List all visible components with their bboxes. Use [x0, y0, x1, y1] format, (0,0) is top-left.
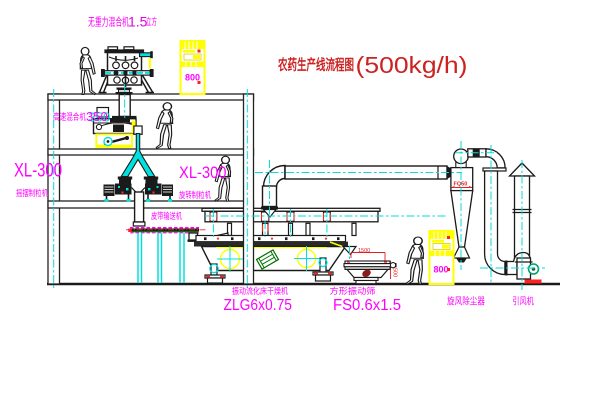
svg-text:方形振动筛: 方形振动筛: [330, 286, 377, 296]
svg-text:农药生产线流程图: 农药生产线流程图: [277, 56, 354, 74]
svg-text:500: 500: [392, 268, 398, 277]
svg-text:振动流化床干燥机: 振动流化床干燥机: [232, 286, 288, 296]
svg-text:XL-300: XL-300: [179, 163, 227, 182]
svg-text:摇摆制粒机: 摇摆制粒机: [16, 188, 48, 198]
svg-text:立方: 立方: [146, 16, 157, 28]
svg-text:1.5: 1.5: [128, 14, 148, 30]
svg-text:FS0.6x1.5: FS0.6x1.5: [333, 297, 401, 314]
svg-text:XL-300: XL-300: [14, 161, 62, 182]
svg-text:皮带输送机: 皮带输送机: [151, 211, 182, 221]
svg-text:350: 350: [86, 109, 108, 124]
svg-text:高速混合机: 高速混合机: [53, 111, 86, 122]
svg-text:旋转制粒机: 旋转制粒机: [179, 190, 211, 200]
svg-text:FQ50: FQ50: [454, 182, 468, 188]
svg-text:引风机: 引风机: [512, 296, 534, 308]
svg-text:1500: 1500: [358, 248, 370, 254]
svg-text:800: 800: [434, 265, 449, 275]
svg-text:(500kg/h): (500kg/h): [356, 52, 468, 78]
svg-text:ZLG6x0.75: ZLG6x0.75: [224, 297, 293, 314]
svg-text:旋风除尘器: 旋风除尘器: [447, 296, 485, 308]
svg-text:无重力混合机: 无重力混合机: [88, 15, 129, 29]
